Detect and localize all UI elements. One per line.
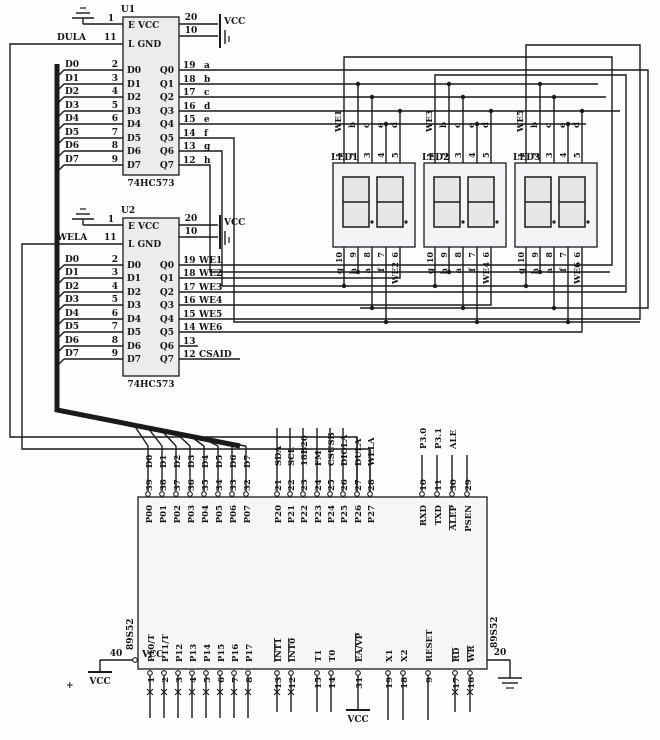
net-label: c bbox=[453, 123, 463, 128]
pin-number: 6 bbox=[572, 252, 582, 258]
pin-number: 20 bbox=[494, 648, 507, 658]
chip-inner-label: Q5 bbox=[160, 328, 174, 338]
pin-number: 12 bbox=[183, 156, 196, 166]
net-label: c bbox=[362, 123, 372, 128]
junction-dot bbox=[552, 306, 556, 310]
pin-number: 7 bbox=[376, 252, 386, 258]
chip-inner-label: L GND bbox=[128, 240, 161, 250]
pin-number: 3 bbox=[175, 677, 185, 683]
net-label: D7 bbox=[243, 455, 253, 468]
mcu-port-label: X1 bbox=[385, 649, 395, 662]
pin-number: 33 bbox=[229, 479, 239, 491]
pin-number: 38 bbox=[159, 479, 169, 491]
chip-inner-label: Q3 bbox=[160, 107, 174, 117]
chip-inner-label: D0 bbox=[127, 66, 141, 76]
mcu-port-label: P15 bbox=[217, 644, 227, 662]
net-label: a bbox=[454, 268, 464, 274]
net-label: D0 bbox=[145, 455, 155, 468]
pin-connector bbox=[188, 492, 193, 497]
pin-number: 24 bbox=[314, 479, 324, 491]
pin-connector bbox=[244, 492, 249, 497]
pin-connector bbox=[368, 492, 373, 497]
decimal-point bbox=[404, 220, 407, 223]
chip-inner-label: D0 bbox=[127, 261, 141, 271]
net-label: D1 bbox=[159, 455, 169, 468]
mcu-port-label: P14 bbox=[203, 644, 213, 662]
mcu-port-label: P23 bbox=[314, 505, 324, 523]
pin-number: 7 bbox=[231, 677, 241, 683]
net-label: D1 bbox=[65, 268, 79, 278]
junction-dot bbox=[342, 284, 346, 288]
mcu-port-label: RXD bbox=[419, 504, 429, 526]
pin-connector bbox=[288, 492, 293, 497]
pin-number: 4 bbox=[467, 152, 477, 158]
junction-dot bbox=[398, 109, 402, 113]
pin-connector bbox=[435, 492, 440, 497]
pin-number: 15 bbox=[314, 677, 324, 689]
chip-ref: U2 bbox=[121, 206, 135, 216]
net-label: e bbox=[558, 122, 568, 128]
net-label: 18B20 bbox=[300, 435, 310, 466]
pin-number: 5 bbox=[203, 677, 213, 683]
net-label: d bbox=[572, 122, 582, 128]
pin-number: 4 bbox=[189, 677, 199, 683]
net-label: WELA bbox=[367, 437, 377, 467]
net-label: g bbox=[204, 142, 211, 152]
chip-inner-label: Q0 bbox=[160, 261, 174, 271]
mcu-port-label: P27 bbox=[367, 505, 377, 523]
pin-number: 4 bbox=[558, 152, 568, 158]
mcu-port-label: INT0 bbox=[288, 638, 298, 662]
pin-number: 18 bbox=[400, 677, 410, 689]
pin-connector bbox=[289, 671, 294, 676]
mcu-part: 89S52 bbox=[126, 618, 136, 650]
chip-inner-label: E VCC bbox=[128, 21, 159, 31]
pin-number: 3 bbox=[453, 152, 463, 158]
pin-number: 9 bbox=[348, 252, 358, 258]
chip-inner-label: D3 bbox=[127, 301, 141, 311]
pin-connector bbox=[301, 492, 306, 497]
pin-number: 4 bbox=[112, 87, 118, 97]
net-label: D5 bbox=[215, 455, 225, 468]
mcu-port-label: P03 bbox=[187, 505, 197, 523]
pin-number: 10 bbox=[185, 227, 198, 237]
net-label: SCL bbox=[287, 447, 297, 466]
decimal-point bbox=[461, 220, 464, 223]
pin-number: 8 bbox=[245, 677, 255, 683]
pin-number: 32 bbox=[243, 479, 253, 491]
pin-connector bbox=[202, 492, 207, 497]
net-label: d bbox=[390, 122, 400, 128]
net-label: c bbox=[204, 88, 210, 98]
pin-number: 9 bbox=[112, 155, 118, 165]
mcu-port-label: P11/T bbox=[161, 634, 171, 662]
pin-number: 20 bbox=[185, 13, 198, 23]
chip-inner-label: Q4 bbox=[160, 120, 174, 130]
net-label: D1 bbox=[65, 74, 79, 84]
net-label: WE3 bbox=[198, 283, 222, 293]
mcu-port-label: P04 bbox=[201, 505, 211, 523]
net-label: D2 bbox=[65, 87, 79, 97]
pin-number: 16 bbox=[467, 677, 477, 689]
net-label: D3 bbox=[187, 455, 197, 468]
pin-number: 39 bbox=[145, 479, 155, 491]
net-label: h bbox=[531, 268, 541, 274]
net-label: ALE bbox=[449, 429, 459, 450]
pin-number: 8 bbox=[362, 252, 372, 258]
mcu-port-label: T0 bbox=[328, 650, 338, 662]
pin-connector bbox=[160, 492, 165, 497]
net-label: P3.0 bbox=[419, 428, 429, 449]
pin-number: 1 bbox=[108, 215, 114, 225]
pin-number: 4 bbox=[376, 152, 386, 158]
net-label: b bbox=[204, 75, 210, 85]
net-label: D6 bbox=[229, 455, 239, 468]
net-label: DULA bbox=[354, 438, 364, 466]
pin-number: 2 bbox=[161, 677, 171, 683]
pin-connector bbox=[204, 671, 209, 676]
net-label: D4 bbox=[65, 114, 79, 124]
chip-inner-label: Q1 bbox=[160, 80, 174, 90]
net-label: h bbox=[204, 156, 211, 166]
net-label: d bbox=[481, 122, 491, 128]
pin-number: 2 bbox=[530, 152, 540, 158]
pin-number: 3 bbox=[112, 268, 118, 278]
pin-number: 5 bbox=[112, 295, 118, 305]
pin-number: 2 bbox=[348, 152, 358, 158]
net-label: D5 bbox=[65, 322, 79, 332]
mcu-port-label: EA/VP bbox=[355, 632, 365, 662]
net-label: WE4 bbox=[198, 296, 222, 306]
mcu-port-label: P25 bbox=[340, 505, 350, 523]
pin-number: 16 bbox=[183, 102, 196, 112]
pin-number: 4 bbox=[112, 282, 118, 292]
net-label: e bbox=[204, 115, 210, 125]
vcc-label: VCC bbox=[346, 715, 368, 725]
pin-connector bbox=[218, 671, 223, 676]
pin-number: 9 bbox=[530, 252, 540, 258]
net-label: h bbox=[349, 268, 359, 274]
pin-number: 37 bbox=[173, 479, 183, 491]
net-label: a bbox=[363, 268, 373, 274]
mcu-port-label: RD bbox=[452, 647, 462, 662]
pin-number: 27 bbox=[354, 479, 364, 491]
junction-dot bbox=[461, 95, 465, 99]
mcu-port-label: P26 bbox=[354, 505, 364, 523]
pin-number: 7 bbox=[467, 252, 477, 258]
pin-connector bbox=[328, 492, 333, 497]
pin-connector bbox=[275, 671, 280, 676]
pin-number: 9 bbox=[439, 252, 449, 258]
pin-number: 16 bbox=[183, 296, 196, 306]
mcu-port-label: P02 bbox=[173, 505, 183, 523]
chip-inner-label: Q2 bbox=[160, 288, 174, 298]
pin-number: 19 bbox=[385, 677, 395, 689]
pin-number: 10 bbox=[419, 479, 429, 491]
mcu-part: 89S52 bbox=[490, 616, 500, 648]
pin-number: 3 bbox=[544, 152, 554, 158]
junction-dot bbox=[370, 306, 374, 310]
chip-inner-label: D6 bbox=[127, 342, 141, 352]
pin-number: 1 bbox=[108, 14, 114, 24]
pin-connector bbox=[329, 671, 334, 676]
vcc-label: VCC bbox=[88, 677, 110, 687]
pin-number: 5 bbox=[390, 152, 400, 158]
pin-number: 10 bbox=[516, 252, 526, 264]
chip-inner-label: D7 bbox=[127, 161, 141, 171]
net-label: D4 bbox=[201, 455, 211, 468]
pin-number: 17 bbox=[183, 88, 196, 98]
plus-sign: + bbox=[66, 681, 74, 691]
pin-number: 2 bbox=[112, 255, 118, 265]
net-label: a bbox=[204, 61, 210, 71]
pin-connector bbox=[230, 492, 235, 497]
chip-inner-label: E VCC bbox=[128, 222, 159, 232]
mcu-port-label: P12 bbox=[175, 644, 185, 662]
pin-number: 22 bbox=[287, 479, 297, 491]
pin-number: 5 bbox=[572, 152, 582, 158]
pin-number: 18 bbox=[183, 75, 196, 85]
junction-dot bbox=[489, 109, 493, 113]
net-label: WE5 bbox=[198, 310, 222, 320]
chip-inner-label: D2 bbox=[127, 93, 141, 103]
pin-connector bbox=[232, 671, 237, 676]
net-label: e bbox=[376, 122, 386, 128]
mcu-port-label: X2 bbox=[400, 649, 410, 662]
pin-number: 23 bbox=[300, 479, 310, 491]
net-label: e bbox=[467, 122, 477, 128]
junction-dot bbox=[524, 284, 528, 288]
net-label: g bbox=[335, 268, 345, 274]
decimal-point bbox=[495, 220, 498, 223]
chip-inner-label: Q5 bbox=[160, 134, 174, 144]
pin-number: 9 bbox=[425, 677, 435, 683]
net-label: D6 bbox=[65, 141, 79, 151]
decimal-point bbox=[370, 220, 373, 223]
junction-dot bbox=[370, 95, 374, 99]
pin-connector bbox=[341, 492, 346, 497]
mcu-port-label: ALEP bbox=[449, 504, 459, 531]
junction-dot bbox=[538, 82, 542, 86]
net-label: d bbox=[204, 102, 211, 112]
net-label: CSUSB bbox=[327, 432, 337, 466]
mcu-port-label: RESET bbox=[425, 629, 435, 662]
pin-number: 7 bbox=[112, 322, 118, 332]
pin-number: 17 bbox=[452, 677, 462, 689]
junction-dot bbox=[356, 82, 360, 86]
chip-inner-label: L GND bbox=[128, 40, 161, 50]
chip-inner-label: Q7 bbox=[160, 355, 174, 365]
net-label: WELA bbox=[56, 233, 88, 243]
pin-number: 30 bbox=[449, 479, 459, 491]
junction-dot bbox=[580, 109, 584, 113]
mcu-port-label: P21 bbox=[287, 505, 297, 523]
mcu-port-label: P24 bbox=[327, 505, 337, 523]
mcu-port-label: P01 bbox=[159, 505, 169, 523]
mcu-port-label: T1 bbox=[314, 650, 324, 662]
net-label: DULA bbox=[57, 33, 87, 43]
net-label: D4 bbox=[65, 309, 79, 319]
pin-number: 6 bbox=[217, 677, 227, 683]
pin-connector bbox=[190, 671, 195, 676]
chip-inner-label: D5 bbox=[127, 134, 141, 144]
net-label: D5 bbox=[65, 128, 79, 138]
mcu-port-label: P05 bbox=[215, 505, 225, 523]
chip-inner-label: Q0 bbox=[160, 66, 174, 76]
pin-number: 13 bbox=[183, 142, 196, 152]
pin-number: 40 bbox=[110, 649, 123, 659]
net-label: WE5 bbox=[516, 110, 526, 133]
pin-number: 10 bbox=[185, 26, 198, 36]
pin-number: 9 bbox=[112, 349, 118, 359]
junction-dot bbox=[433, 284, 437, 288]
pin-number: 1 bbox=[516, 152, 526, 158]
net-label: SDA bbox=[274, 445, 284, 466]
chip-inner-label: D7 bbox=[127, 355, 141, 365]
mcu-port-label: PSEN bbox=[464, 505, 474, 532]
pin-number: 11 bbox=[434, 479, 444, 491]
decimal-point bbox=[552, 220, 555, 223]
pin-number: 8 bbox=[544, 252, 554, 258]
chip-inner-label: Q3 bbox=[160, 301, 174, 311]
pin-number: 14 bbox=[328, 677, 338, 689]
pin-number: 6 bbox=[481, 252, 491, 258]
junction-dot bbox=[384, 320, 388, 324]
pin-connector bbox=[246, 671, 251, 676]
mcu-port-label: P10/T bbox=[147, 634, 157, 662]
chip-inner-label: Q6 bbox=[160, 147, 174, 157]
net-label: WE6 bbox=[573, 262, 583, 285]
pin-number: 5 bbox=[481, 152, 491, 158]
net-label: D6 bbox=[65, 336, 79, 346]
mcu-port-label: P17 bbox=[245, 644, 255, 662]
net-label: D0 bbox=[65, 60, 79, 70]
chip-part: 74HC573 bbox=[128, 380, 175, 390]
net-label: D2 bbox=[65, 282, 79, 292]
pin-number: 2 bbox=[439, 152, 449, 158]
pin-number: 34 bbox=[215, 479, 225, 491]
pin-connector bbox=[146, 492, 151, 497]
chip-ref: U1 bbox=[121, 5, 135, 15]
net-label: FM bbox=[314, 450, 324, 466]
pin-number: 35 bbox=[201, 479, 211, 491]
net-label: D2 bbox=[173, 455, 183, 468]
pin-connector bbox=[401, 671, 406, 676]
net-label: DIOLA bbox=[340, 434, 350, 466]
pin-connector bbox=[315, 492, 320, 497]
pin-number: 17 bbox=[183, 283, 196, 293]
pin-number: 10 bbox=[425, 252, 435, 264]
net-label: D3 bbox=[65, 101, 79, 111]
pin-connector bbox=[275, 492, 280, 497]
pin-connector bbox=[386, 671, 391, 676]
pin-number: 18 bbox=[183, 269, 196, 279]
chip-inner-label: D6 bbox=[127, 147, 141, 157]
pin-number: 19 bbox=[183, 61, 196, 71]
pin-number: 11 bbox=[104, 33, 117, 43]
pin-number: 21 bbox=[274, 479, 284, 491]
pin-number: 10 bbox=[334, 252, 344, 264]
net-label: WE3 bbox=[425, 110, 435, 133]
chip-inner-label: Q2 bbox=[160, 93, 174, 103]
net-label: a bbox=[545, 268, 555, 274]
pin-connector bbox=[216, 492, 221, 497]
pin-number: 6 bbox=[390, 252, 400, 258]
net-label: WE1 bbox=[334, 110, 344, 133]
pin-connector bbox=[176, 671, 181, 676]
pin-number: 3 bbox=[112, 74, 118, 84]
mcu-port-label: TXD bbox=[434, 504, 444, 525]
pin-number: 5 bbox=[112, 101, 118, 111]
chip-inner-label: Q4 bbox=[160, 315, 174, 325]
chip-inner-label: D4 bbox=[127, 315, 141, 325]
net-label: D0 bbox=[65, 255, 79, 265]
chip-inner-label: D3 bbox=[127, 107, 141, 117]
mcu-port-label: P22 bbox=[300, 505, 310, 523]
pin-connector bbox=[315, 671, 320, 676]
pin-number: 13 bbox=[183, 337, 196, 347]
pin-number: 7 bbox=[112, 128, 118, 138]
chip-inner-label: D1 bbox=[127, 274, 141, 284]
junction-dot bbox=[566, 320, 570, 324]
pin-number: 11 bbox=[104, 233, 117, 243]
chip-inner-label: D1 bbox=[127, 80, 141, 90]
pin-connector bbox=[133, 658, 138, 663]
chip-part: 74HC573 bbox=[128, 179, 175, 189]
mcu-port-label: INT1 bbox=[274, 638, 284, 662]
pin-connector bbox=[174, 492, 179, 497]
pin-number: 19 bbox=[183, 256, 196, 266]
pin-number: 20 bbox=[185, 214, 198, 224]
pin-number: 12 bbox=[288, 677, 298, 689]
pin-connector bbox=[450, 492, 455, 497]
pin-connector bbox=[148, 671, 153, 676]
net-label: b bbox=[439, 122, 449, 128]
pin-number: 1 bbox=[425, 152, 435, 158]
pin-connector bbox=[426, 671, 431, 676]
pin-connector bbox=[162, 671, 167, 676]
pin-number: 28 bbox=[367, 479, 377, 491]
pin-number: 8 bbox=[112, 336, 118, 346]
net-label: g bbox=[517, 268, 527, 274]
junction-dot bbox=[552, 95, 556, 99]
mcu-port-label: P16 bbox=[231, 644, 241, 662]
mcu-port-label: P13 bbox=[189, 644, 199, 662]
pin-number: 15 bbox=[183, 115, 196, 125]
pin-number: 2 bbox=[112, 60, 118, 70]
pin-number: 31 bbox=[355, 677, 365, 689]
junction-dot bbox=[447, 82, 451, 86]
chip-inner-label: D2 bbox=[127, 288, 141, 298]
net-label: D3 bbox=[65, 295, 79, 305]
net-label: WE2 bbox=[198, 269, 222, 279]
chip-inner-label: Q6 bbox=[160, 342, 174, 352]
net-label: g bbox=[426, 268, 436, 274]
junction-dot bbox=[475, 320, 479, 324]
pin-number: 7 bbox=[558, 252, 568, 258]
pin-number: 26 bbox=[340, 479, 350, 491]
mcu-port-label: P06 bbox=[229, 505, 239, 523]
net-label: WE6 bbox=[198, 323, 222, 333]
pin-number: 29 bbox=[464, 479, 474, 491]
mcu-port-label: P07 bbox=[243, 505, 253, 523]
pin-connector bbox=[468, 671, 473, 676]
net-label: WE1 bbox=[198, 256, 222, 266]
mcu-port-label: WR bbox=[467, 644, 477, 663]
pin-connector bbox=[453, 671, 458, 676]
pin-number: 15 bbox=[183, 310, 196, 320]
net-label: h bbox=[440, 268, 450, 274]
